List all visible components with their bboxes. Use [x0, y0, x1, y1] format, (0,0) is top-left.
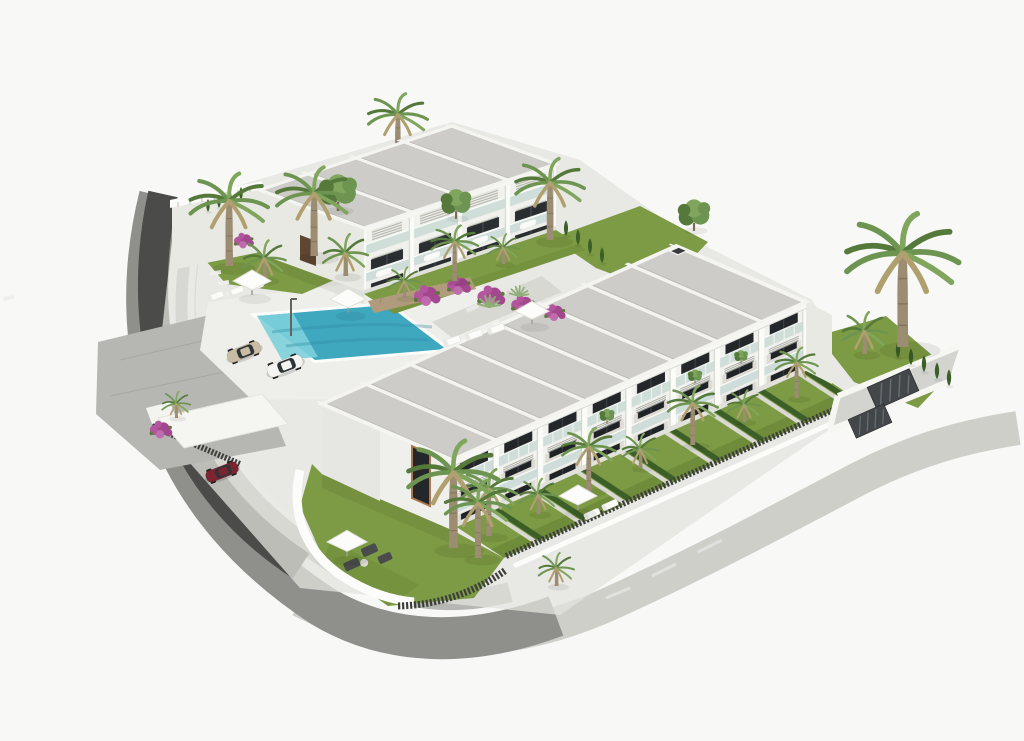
- building-b-east-wall: [806, 302, 832, 384]
- site-render: [0, 0, 1024, 741]
- render-stage: [0, 0, 1024, 741]
